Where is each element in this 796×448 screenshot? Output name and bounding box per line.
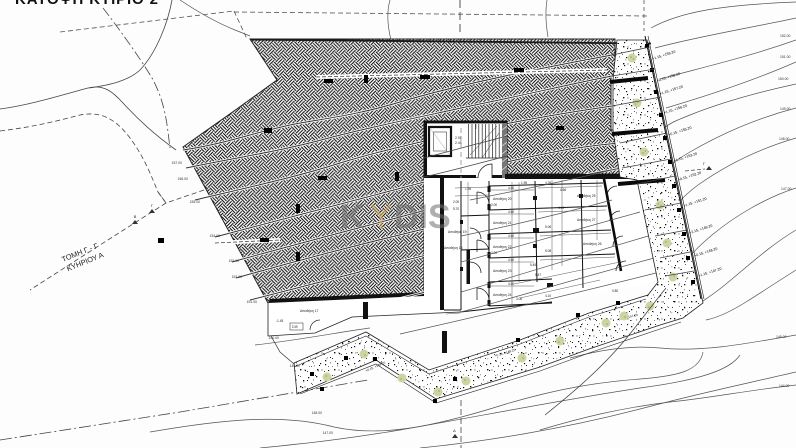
svg-text:148.00: 148.00 (312, 411, 322, 415)
svg-text:1.95: 1.95 (521, 181, 527, 185)
svg-text:4.66: 4.66 (560, 188, 566, 192)
svg-text:Αποθήκη 18: Αποθήκη 18 (444, 246, 463, 250)
svg-text:148.00: 148.00 (779, 137, 789, 141)
svg-text:2.00: 2.00 (491, 203, 497, 207)
svg-text:145.00: 145.00 (776, 335, 786, 339)
svg-text:Αποθήκη 17: Αποθήκη 17 (300, 309, 319, 313)
svg-text:0.80: 0.80 (612, 289, 618, 293)
svg-text:147.00: 147.00 (781, 187, 791, 191)
svg-text:Αποθήκη 19: Αποθήκη 19 (448, 230, 467, 234)
svg-text:4.60: 4.60 (508, 234, 514, 238)
svg-text:Σ49: Σ49 (292, 325, 298, 329)
svg-text:5.08: 5.08 (545, 249, 551, 253)
svg-text:154.00: 154.00 (210, 234, 220, 238)
svg-text:1.95: 1.95 (465, 187, 471, 191)
svg-text:5.70: 5.70 (453, 207, 459, 211)
svg-text:152.00: 152.00 (232, 275, 242, 279)
svg-text:149.00: 149.00 (290, 364, 300, 368)
svg-text:K: K (340, 198, 365, 236)
svg-text:4.60: 4.60 (508, 186, 514, 190)
svg-text:151.00: 151.00 (247, 300, 257, 304)
svg-text:157.00: 157.00 (172, 161, 182, 165)
svg-text:4.60: 4.60 (508, 282, 514, 286)
svg-text:144.00: 144.00 (779, 384, 789, 388)
svg-text:DIS: DIS (394, 198, 451, 236)
svg-text:151.00: 151.00 (780, 55, 790, 59)
svg-text:153.00: 153.00 (229, 259, 239, 263)
svg-text:5.45: 5.45 (530, 263, 536, 267)
svg-text:2.00: 2.00 (453, 200, 459, 204)
svg-text:Αποθήκη 23: Αποθήκη 23 (493, 269, 512, 273)
svg-text:155.00: 155.00 (190, 200, 200, 204)
svg-text:4.10: 4.10 (545, 294, 551, 298)
svg-text:4.60: 4.60 (508, 210, 514, 214)
svg-text:150.00: 150.00 (778, 77, 788, 81)
svg-text:5.06: 5.06 (545, 225, 551, 229)
svg-text:150.00: 150.00 (269, 336, 279, 340)
svg-text:Αποθήκη 21: Αποθήκη 21 (493, 221, 512, 225)
svg-text:Αποθήκη 22: Αποθήκη 22 (493, 245, 512, 249)
svg-text:3.06: 3.06 (516, 297, 522, 301)
svg-text:ΚΑΤΟΨΗ ΚΤΙΡΙΟ 2: ΚΑΤΟΨΗ ΚΤΙΡΙΟ 2 (15, 0, 158, 8)
svg-text:152.00: 152.00 (780, 34, 790, 38)
svg-text:4.44: 4.44 (558, 206, 564, 210)
svg-text:147.00: 147.00 (323, 431, 333, 435)
svg-text:5.47: 5.47 (535, 273, 541, 277)
svg-text:Αποθήκη 27: Αποθήκη 27 (577, 218, 596, 222)
svg-text:Αποθήκη 20: Αποθήκη 20 (493, 197, 512, 201)
svg-text:Αποθήκη 26: Αποθήκη 26 (583, 242, 602, 246)
svg-text:Δ: Δ (453, 428, 456, 433)
svg-text:156.00: 156.00 (178, 177, 188, 181)
svg-text:149.00: 149.00 (780, 107, 790, 111)
svg-text:Β: Β (134, 214, 137, 219)
svg-text:Αποθήκη 24: Αποθήκη 24 (493, 293, 512, 297)
svg-text:4.60: 4.60 (508, 258, 514, 262)
svg-text:-1.45: -1.45 (276, 319, 283, 323)
